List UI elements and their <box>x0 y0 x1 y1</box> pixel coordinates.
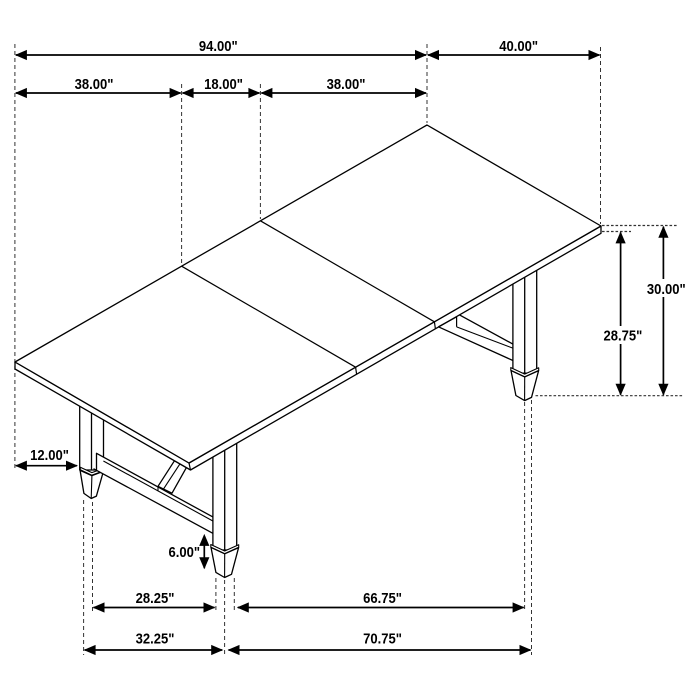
svg-text:28.75": 28.75" <box>603 327 642 344</box>
svg-text:28.25": 28.25" <box>136 589 175 606</box>
svg-text:32.25": 32.25" <box>136 630 175 647</box>
svg-text:38.00": 38.00" <box>75 75 114 92</box>
svg-text:30.00": 30.00" <box>647 280 686 297</box>
svg-text:40.00": 40.00" <box>499 37 538 54</box>
svg-text:70.75": 70.75" <box>363 630 402 647</box>
svg-text:6.00": 6.00" <box>168 543 200 560</box>
svg-text:12.00": 12.00" <box>30 446 69 463</box>
svg-text:18.00": 18.00" <box>204 75 243 92</box>
svg-text:94.00": 94.00" <box>199 37 238 54</box>
svg-text:66.75": 66.75" <box>363 589 402 606</box>
svg-text:38.00": 38.00" <box>327 75 366 92</box>
